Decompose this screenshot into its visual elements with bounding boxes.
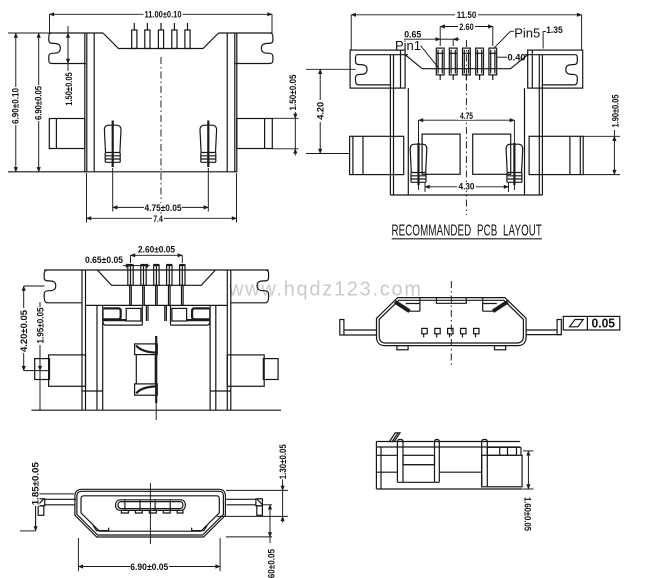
svg-text:4.75±0.05: 4.75±0.05 bbox=[145, 203, 182, 213]
svg-text:4.20: 4.20 bbox=[315, 102, 325, 120]
svg-text:0.40: 0.40 bbox=[508, 52, 526, 62]
svg-text:1.85±0.05: 1.85±0.05 bbox=[30, 462, 40, 505]
svg-text:2.60: 2.60 bbox=[459, 22, 474, 32]
svg-text:7.4: 7.4 bbox=[153, 214, 163, 224]
svg-text:0.65±0.05: 0.65±0.05 bbox=[85, 255, 123, 265]
svg-text:4.20±0.05: 4.20±0.05 bbox=[19, 310, 29, 352]
svg-text:6.90±0.05: 6.90±0.05 bbox=[33, 86, 43, 120]
svg-text:11.50: 11.50 bbox=[457, 10, 477, 20]
svg-text:1.50±0.05: 1.50±0.05 bbox=[288, 75, 298, 111]
svg-text:1.60±0.05: 1.60±0.05 bbox=[522, 497, 532, 531]
svg-text:6.90±0.10: 6.90±0.10 bbox=[10, 88, 20, 124]
svg-text:4.75: 4.75 bbox=[460, 111, 473, 121]
svg-text:Pin1: Pin1 bbox=[395, 38, 421, 53]
svg-text:www.hqdz123.com: www.hqdz123.com bbox=[228, 279, 421, 301]
svg-text:11.00±0.10: 11.00±0.10 bbox=[145, 10, 182, 20]
svg-text:1.30±0.05: 1.30±0.05 bbox=[278, 444, 288, 479]
svg-text:0.05: 0.05 bbox=[592, 316, 616, 330]
svg-text:1.35: 1.35 bbox=[546, 25, 563, 35]
svg-text:1.95±0.05: 1.95±0.05 bbox=[35, 308, 45, 344]
svg-text:RECOMMANDED PCB LAYOUT: RECOMMANDED PCB LAYOUT bbox=[392, 223, 543, 240]
svg-text:2.60±0.05: 2.60±0.05 bbox=[138, 244, 175, 254]
svg-text:Pin5: Pin5 bbox=[514, 25, 540, 40]
svg-text:4.30: 4.30 bbox=[459, 182, 475, 192]
svg-text:1.60±0.05: 1.60±0.05 bbox=[266, 549, 276, 578]
svg-text:1.90±0.05: 1.90±0.05 bbox=[611, 95, 621, 128]
svg-text:6.90±0.05: 6.90±0.05 bbox=[130, 562, 168, 572]
svg-text:1.50±0.05: 1.50±0.05 bbox=[64, 72, 74, 106]
